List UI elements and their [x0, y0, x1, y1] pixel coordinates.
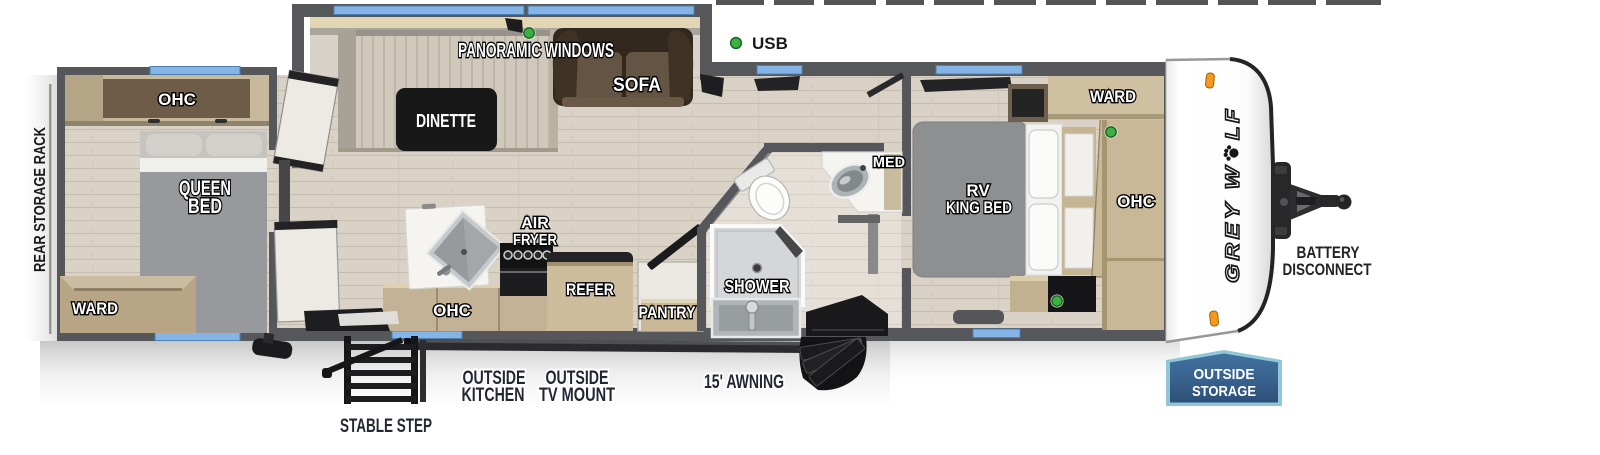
svg-text:PANORAMIC WINDOWS: PANORAMIC WINDOWS — [458, 40, 614, 62]
svg-text:DINETTE: DINETTE — [416, 111, 476, 131]
svg-text:GREY W: GREY W — [1223, 163, 1244, 283]
svg-text:KING BED: KING BED — [946, 198, 1012, 217]
svg-text:BED: BED — [188, 195, 222, 218]
svg-text:BATTERY: BATTERY — [1297, 244, 1360, 262]
svg-text:TV MOUNT: TV MOUNT — [539, 385, 615, 406]
svg-text:15' AWNING: 15' AWNING — [704, 372, 784, 393]
svg-text:REAR STORAGE RACK: REAR STORAGE RACK — [32, 127, 49, 272]
svg-text:FRYER: FRYER — [513, 232, 557, 249]
svg-text:AIR: AIR — [521, 215, 549, 232]
svg-text:SOFA: SOFA — [613, 75, 661, 96]
svg-text:OHC: OHC — [433, 301, 471, 320]
svg-text:WARD: WARD — [1090, 87, 1136, 106]
svg-text:STORAGE: STORAGE — [1192, 383, 1256, 400]
svg-text:OHC: OHC — [1117, 192, 1155, 211]
svg-text:OUTSIDE: OUTSIDE — [1194, 366, 1255, 383]
svg-text:STABLE STEP: STABLE STEP — [340, 416, 432, 437]
svg-text:USB: USB — [752, 34, 788, 53]
svg-text:KITCHEN: KITCHEN — [462, 385, 525, 406]
svg-text:LF: LF — [1223, 106, 1244, 140]
svg-text:DISCONNECT: DISCONNECT — [1283, 261, 1372, 279]
svg-text:REFER: REFER — [566, 280, 614, 299]
svg-text:MED: MED — [873, 155, 905, 171]
svg-text:OHC: OHC — [158, 90, 196, 109]
svg-text:WARD: WARD — [72, 299, 118, 318]
svg-text:PANTRY: PANTRY — [639, 303, 697, 322]
svg-text:SHOWER: SHOWER — [725, 276, 790, 296]
